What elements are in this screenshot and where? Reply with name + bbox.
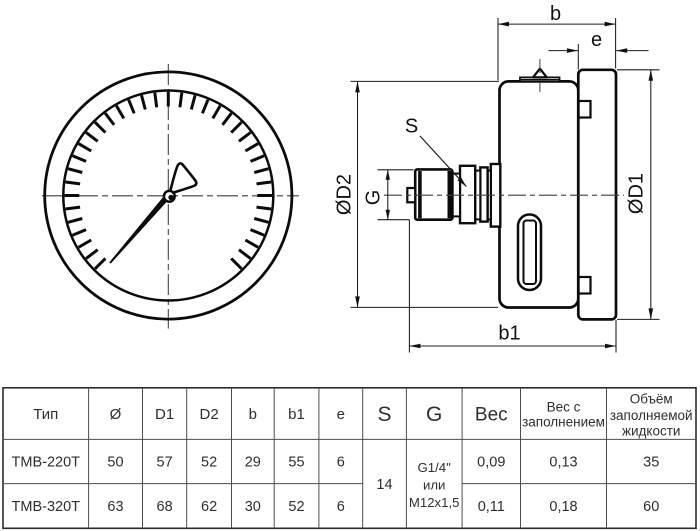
- svg-text:0,11: 0,11: [478, 499, 505, 515]
- svg-text:b1: b1: [498, 323, 520, 345]
- svg-text:или: или: [423, 478, 445, 493]
- svg-text:14: 14: [376, 477, 392, 493]
- svg-text:e: e: [591, 29, 602, 51]
- svg-text:G: G: [363, 190, 385, 206]
- svg-text:60: 60: [643, 499, 659, 515]
- svg-text:Тип: Тип: [33, 406, 58, 423]
- svg-text:57: 57: [157, 455, 173, 471]
- svg-text:55: 55: [288, 455, 304, 471]
- svg-text:S: S: [377, 403, 391, 426]
- svg-text:6: 6: [337, 499, 345, 515]
- svg-text:M12x1,5: M12x1,5: [409, 495, 460, 510]
- svg-text:e: e: [337, 406, 345, 423]
- svg-text:заполнением: заполнением: [522, 414, 605, 429]
- svg-text:Вес: Вес: [475, 404, 508, 425]
- svg-text:50: 50: [107, 455, 123, 471]
- svg-text:b: b: [249, 406, 257, 423]
- svg-text:35: 35: [643, 455, 659, 471]
- svg-text:ТМВ-220Т: ТМВ-220Т: [12, 455, 81, 471]
- svg-text:b1: b1: [288, 406, 305, 423]
- svg-text:Вес с: Вес с: [547, 400, 581, 415]
- svg-text:68: 68: [157, 499, 173, 515]
- svg-text:b: b: [550, 3, 561, 25]
- svg-text:63: 63: [107, 499, 123, 515]
- svg-text:Ø: Ø: [110, 406, 122, 423]
- svg-text:жидкости: жидкости: [622, 423, 681, 438]
- svg-text:0,18: 0,18: [549, 499, 577, 515]
- svg-text:заполняемой: заполняемой: [610, 408, 693, 423]
- svg-text:Объём: Объём: [630, 392, 673, 407]
- svg-text:29: 29: [245, 455, 261, 471]
- svg-text:ØD2: ØD2: [333, 174, 355, 215]
- svg-text:6: 6: [337, 455, 345, 471]
- svg-text:30: 30: [245, 499, 261, 515]
- svg-text:S: S: [405, 116, 418, 138]
- svg-text:52: 52: [201, 455, 217, 471]
- svg-text:G: G: [426, 403, 442, 426]
- svg-text:62: 62: [201, 499, 217, 515]
- svg-text:52: 52: [288, 499, 304, 515]
- svg-text:D1: D1: [155, 406, 174, 423]
- svg-text:0,09: 0,09: [477, 455, 505, 471]
- svg-text:ТМВ-320Т: ТМВ-320Т: [12, 499, 81, 515]
- svg-text:G1/4": G1/4": [418, 460, 452, 475]
- svg-text:0,13: 0,13: [549, 455, 577, 471]
- svg-text:ØD1: ØD1: [626, 173, 648, 214]
- svg-text:D2: D2: [200, 406, 219, 423]
